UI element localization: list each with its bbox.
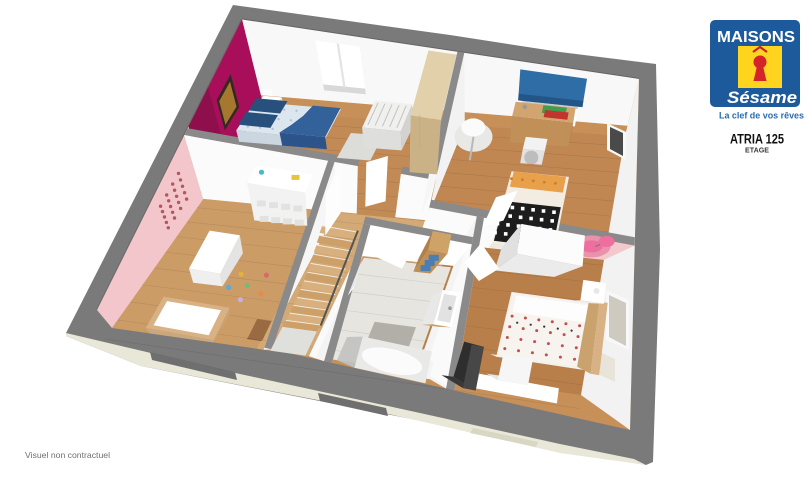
svg-text:Visuel non contractuel: Visuel non contractuel bbox=[25, 450, 110, 460]
svg-text:Sésame: Sésame bbox=[727, 89, 797, 107]
svg-text:MAISONS: MAISONS bbox=[717, 29, 795, 46]
svg-text:ATRIA 125: ATRIA 125 bbox=[730, 132, 784, 147]
svg-text:La clef de vos rêves: La clef de vos rêves bbox=[719, 111, 804, 121]
svg-text:ETAGE: ETAGE bbox=[745, 146, 769, 155]
